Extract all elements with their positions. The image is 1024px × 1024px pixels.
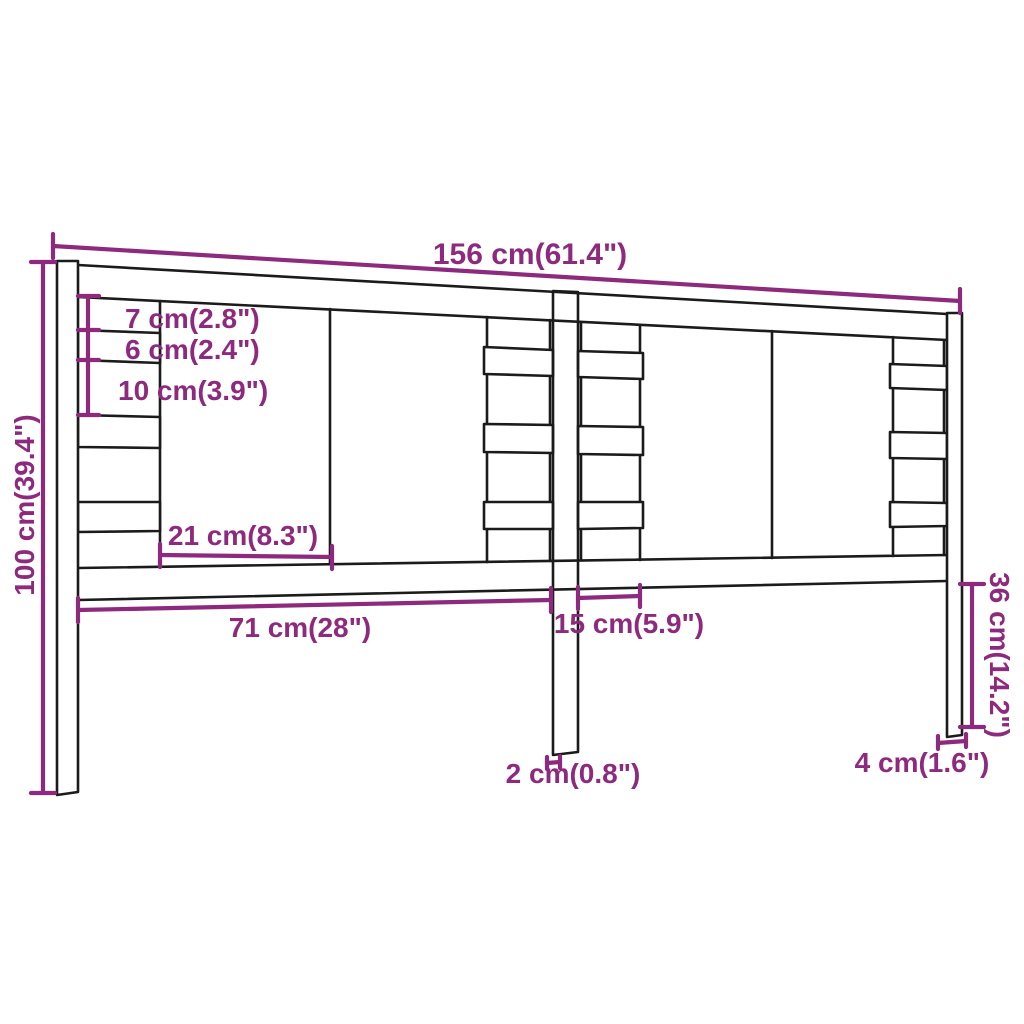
dimension-right-leg-height: 36 cm(14.2") xyxy=(960,572,1015,738)
dimension-slat-column-width: 15 cm(5.9") xyxy=(554,585,704,639)
left-panel-width-label: 71 cm(28") xyxy=(229,612,371,643)
total-width-label: 156 cm(61.4") xyxy=(433,238,627,271)
dimension-board-width: 21 cm(8.3") xyxy=(160,520,332,569)
slat-column-width-label: 15 cm(5.9") xyxy=(554,608,704,639)
board-width-label: 21 cm(8.3") xyxy=(168,520,318,551)
dimension-side-leg-thickness: 4 cm(1.6") xyxy=(855,734,990,778)
dimension-total-height: 100 cm(39.4") xyxy=(9,262,55,793)
side-leg-thickness-label: 4 cm(1.6") xyxy=(855,747,990,778)
right-leg xyxy=(947,313,962,737)
center-leg xyxy=(553,291,578,755)
slat-column-right xyxy=(890,364,947,527)
bottom-rail xyxy=(78,555,947,600)
slat-column-center-left xyxy=(484,347,553,529)
mid-gap-label: 10 cm(3.9") xyxy=(118,375,268,406)
slat-height-label: 6 cm(2.4") xyxy=(125,334,260,365)
top-gap-label: 7 cm(2.8") xyxy=(125,303,260,334)
dimension-left-panel-width: 71 cm(28") xyxy=(78,588,551,643)
total-height-label: 100 cm(39.4") xyxy=(9,414,40,595)
left-leg xyxy=(57,261,78,795)
right-leg-height-label: 36 cm(14.2") xyxy=(984,572,1015,738)
slat-column-center-right xyxy=(578,351,643,529)
dimension-center-leg-thickness: 2 cm(0.8") xyxy=(506,756,641,789)
center-leg-thickness-label: 2 cm(0.8") xyxy=(506,758,641,789)
headboard-diagram-canvas: 156 cm(61.4") 100 cm(39.4") 7 cm(2.8") 6… xyxy=(0,0,1024,1024)
diagram-page: 156 cm(61.4") 100 cm(39.4") 7 cm(2.8") 6… xyxy=(0,0,1024,1024)
dimension-total-width: 156 cm(61.4") xyxy=(53,234,960,313)
